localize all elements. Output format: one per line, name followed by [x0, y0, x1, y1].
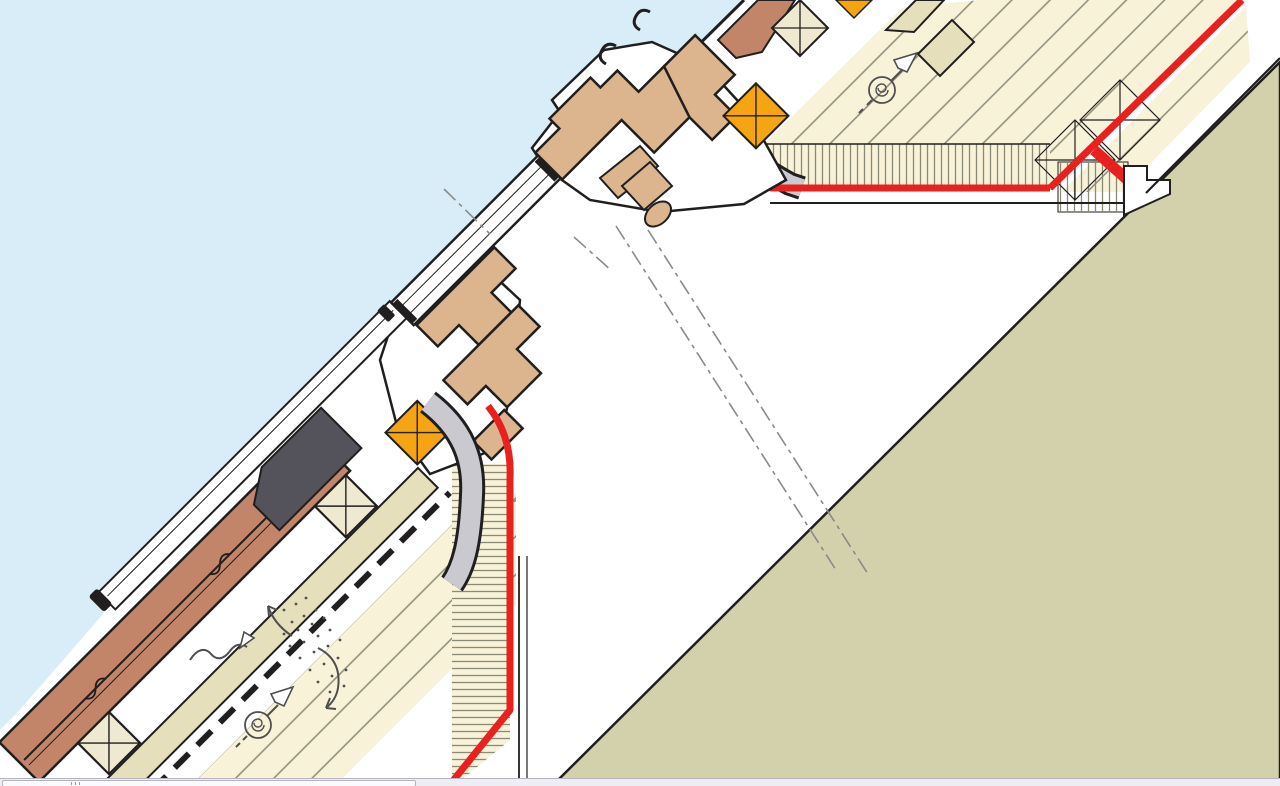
horizontal-scrollbar[interactable]	[0, 778, 1280, 786]
drawing-viewer	[0, 0, 1280, 786]
roof-window-section-drawing	[0, 0, 1280, 778]
scrollbar-thumb[interactable]	[2, 780, 416, 786]
timber-batten-orange-top-edge	[836, 0, 872, 18]
interior-lining-lower	[519, 556, 527, 778]
scrollbar-thumb-grip-icon	[71, 782, 80, 785]
drawing-canvas	[0, 0, 1280, 778]
